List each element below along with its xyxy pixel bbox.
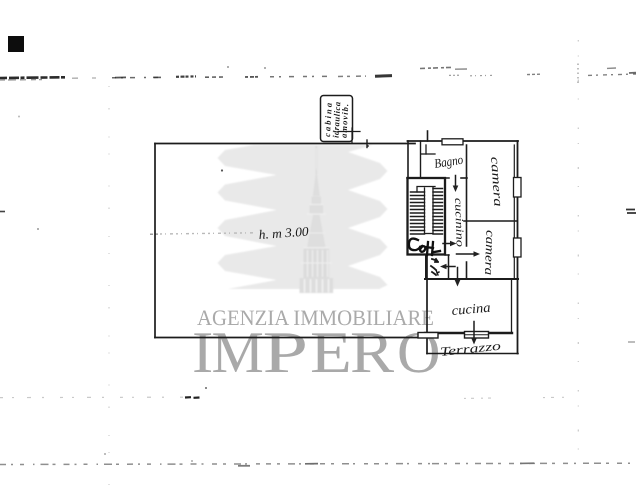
svg-text:O: O [397,319,441,385]
svg-text:M: M [212,319,264,385]
svg-text:amovib.: amovib. [339,104,351,138]
svg-text:E: E [310,319,352,385]
svg-text:R: R [350,319,395,385]
svg-text:I: I [192,319,213,385]
svg-text:camera: camera [482,230,498,275]
svg-text:cucinino: cucinino [452,198,466,248]
svg-text:P: P [263,319,309,385]
